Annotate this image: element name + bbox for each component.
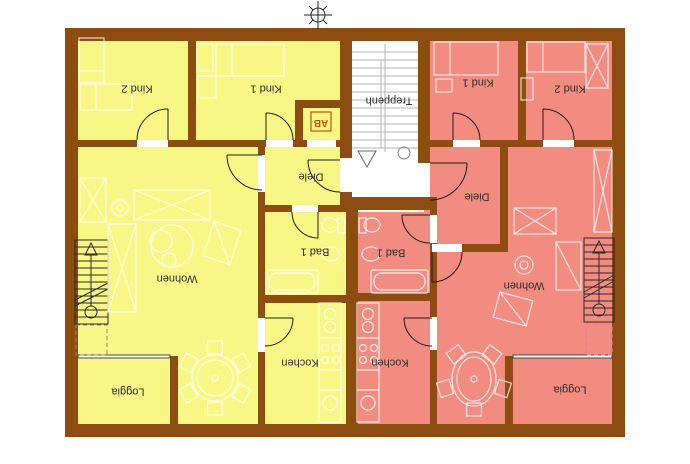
room-label-loggia-right: Loggia (553, 384, 586, 395)
left-apartment-area (71, 34, 354, 431)
room-label-stairwell: Treppenh (366, 95, 413, 106)
room-label-kochen-left: Kochen (281, 357, 318, 368)
room-label-diele-right: Diele (464, 191, 489, 202)
survey-marker-icon (304, 1, 332, 29)
room-label-bad-left: Bad 1 (301, 246, 330, 257)
room-label-bad-right: Bad 1 (377, 247, 406, 258)
room-label-kind1-right: Kind 1 (462, 77, 493, 88)
room-label-kind2-left: Kind 2 (121, 83, 152, 94)
floor-plan-canvas: Kind 2 Kind 1 AB Treppenh Kind 1 Kind 2 … (0, 0, 690, 464)
room-label-wohnen-right: Wohnen (504, 280, 545, 291)
room-label-wohnen-left: Wohnen (157, 273, 198, 284)
room-label-loggia-left: Loggia (111, 386, 144, 397)
room-label-kochen-right: Kochen (371, 357, 408, 368)
room-label-ab: AB (314, 117, 328, 127)
room-label-kind1-left: Kind 1 (250, 83, 281, 94)
room-label-kind2-right: Kind 2 (554, 83, 585, 94)
room-label-diele-left: Diele (298, 171, 323, 182)
